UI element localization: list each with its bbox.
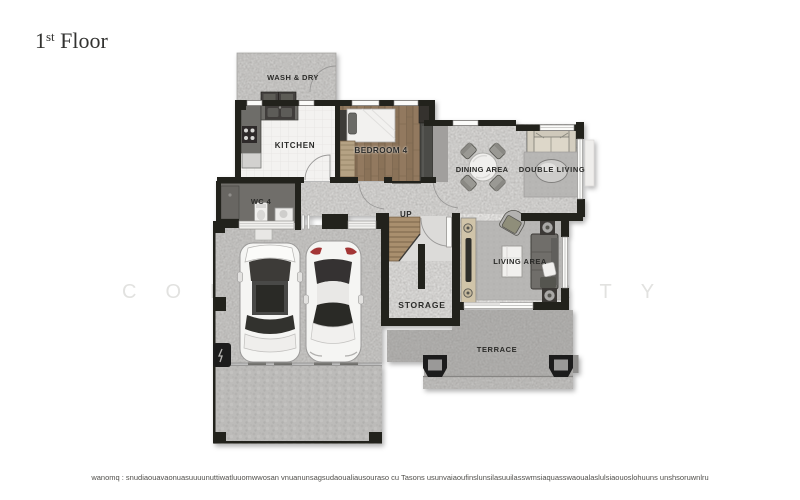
svg-text:BEDROOM 4: BEDROOM 4 (354, 146, 407, 155)
svg-text:TERRACE: TERRACE (477, 345, 517, 354)
svg-text:DOUBLE LIVING: DOUBLE LIVING (519, 165, 586, 174)
svg-text:KITCHEN: KITCHEN (275, 141, 315, 150)
svg-text:WASH & DRY: WASH & DRY (267, 73, 319, 82)
svg-text:STORAGE: STORAGE (398, 300, 445, 310)
svg-text:UP: UP (400, 210, 412, 219)
svg-text:DINING AREA: DINING AREA (456, 165, 509, 174)
svg-text:wanomq : snudiaouavaonuasuuuun: wanomq : snudiaouavaonuasuuuunuttiwatluu… (90, 473, 708, 482)
svg-text:WC 4: WC 4 (251, 197, 272, 206)
svg-text:LIVING AREA: LIVING AREA (493, 257, 547, 266)
